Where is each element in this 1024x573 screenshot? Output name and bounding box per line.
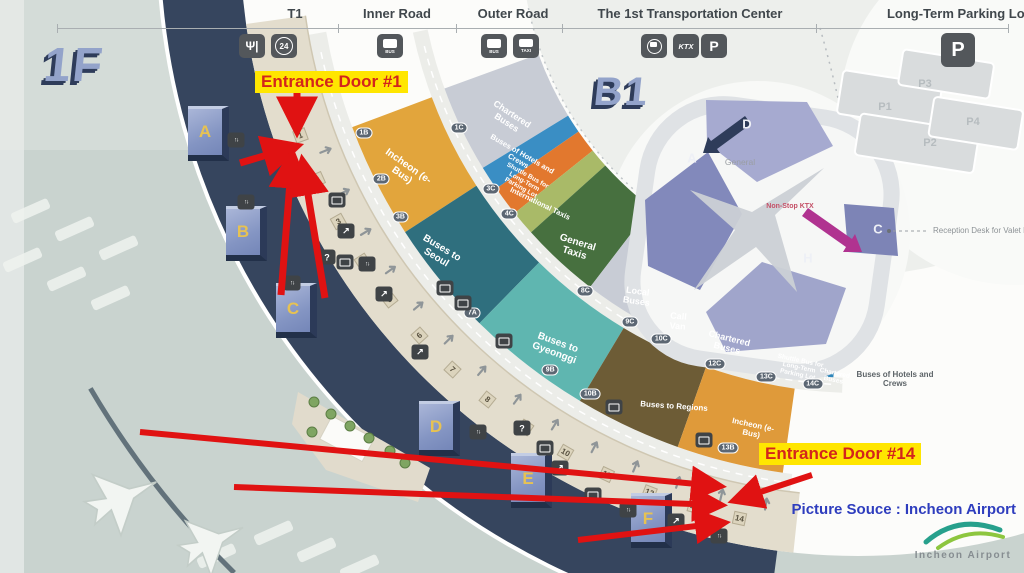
outer-road-stop-marker: 3C bbox=[482, 184, 499, 195]
ktx-icon: KTX bbox=[673, 34, 699, 58]
gate-letter: D bbox=[430, 417, 442, 437]
escalator-icon: ↗ bbox=[338, 224, 355, 239]
ticket-machine-icon bbox=[537, 441, 554, 456]
ruler-tick bbox=[338, 24, 339, 33]
parking-block-label-P4: P4 bbox=[966, 116, 979, 128]
center-section-label-A: A bbox=[687, 151, 696, 166]
general-parking-label: General bbox=[725, 157, 755, 167]
inner-road-stop-marker: 2B bbox=[373, 173, 390, 184]
header-section-long-term-parking: Long-Term Parking Lot bbox=[887, 6, 1024, 21]
outer-road-zone-label: Chartered Buses bbox=[698, 328, 757, 361]
elevator-icon: ↑↓ bbox=[284, 276, 301, 291]
ticket-machine-icon bbox=[329, 193, 346, 208]
gate-letter: A bbox=[199, 122, 211, 142]
gate-letter: F bbox=[643, 509, 653, 529]
terminal-door-7: 7 bbox=[443, 360, 461, 378]
elevator-icon: ↑↓ bbox=[620, 503, 637, 518]
outer-road-zone-label: Call Van bbox=[661, 311, 695, 333]
center-section-label-C: C bbox=[873, 222, 882, 237]
ticket-machine-icon bbox=[606, 400, 623, 415]
parking-block-label-P3: P3 bbox=[918, 78, 931, 90]
terminal-gate-D: D bbox=[419, 401, 460, 456]
elevator-icon: ↑↓ bbox=[228, 133, 245, 148]
center-section-label-D: D bbox=[742, 117, 751, 132]
inner-road-zone-label: Incheon (e-Bus) bbox=[373, 144, 436, 198]
ticket-machine-icon bbox=[337, 255, 354, 270]
terminal-gate-A: A bbox=[188, 106, 229, 161]
ruler-tick bbox=[562, 24, 563, 33]
terminal-gate-C: C bbox=[276, 283, 317, 338]
inner-road-stop-marker: 13B bbox=[718, 442, 739, 453]
valet-reception-label: Reception Desk for Valet Parking bbox=[933, 226, 1024, 235]
header-section-transport-center: The 1st Transportation Center bbox=[598, 6, 783, 21]
inner-road-stop-marker: 3B bbox=[392, 212, 409, 223]
elevator-icon: ↑↓ bbox=[711, 529, 728, 544]
map-overlay: Incheon (e-Bus)Buses to SeoulBuses to Gy… bbox=[0, 0, 1024, 573]
inner-road-zone-label: Buses to Seoul bbox=[408, 229, 469, 278]
header-section-outer-road: Outer Road bbox=[478, 6, 549, 21]
ruler-tick bbox=[1008, 24, 1009, 33]
elevator-icon: ↑↓ bbox=[238, 195, 255, 210]
taxi-icon: TAXI bbox=[513, 34, 539, 58]
elevator-icon: ↑↓ bbox=[470, 425, 487, 440]
outer-road-stop-marker: 1C bbox=[451, 123, 468, 134]
outer-road-stop-marker: 8C bbox=[577, 285, 594, 296]
inner-road-zone-label: Buses to Gyeonggi bbox=[521, 326, 591, 369]
inner-road-stop-marker: 10B bbox=[580, 389, 601, 400]
inner-road-zone-label: Incheon (e-Bus) bbox=[725, 416, 780, 444]
terminal-door-2: 2 bbox=[309, 171, 326, 188]
terminal-door-10: 10 bbox=[556, 444, 574, 462]
escalator-icon: ↗ bbox=[412, 345, 429, 360]
gate-letter: E bbox=[522, 469, 533, 489]
bus-icon: BUS bbox=[481, 34, 507, 58]
escalator-icon: ↗ bbox=[376, 287, 393, 302]
header-ruler bbox=[57, 28, 1008, 29]
terminal-gate-E: E bbox=[511, 453, 552, 508]
ruler-tick bbox=[816, 24, 817, 33]
terminal-gate-F: F bbox=[631, 493, 672, 548]
open-24h-icon: 24 bbox=[271, 34, 297, 58]
outer-road-stop-marker: 12C bbox=[704, 358, 725, 369]
inner-road-stop-marker: 1B bbox=[355, 127, 372, 138]
train-icon bbox=[641, 34, 667, 58]
nonstop-ktx-label: Non-Stop KTX bbox=[765, 203, 815, 211]
parking-block-label-P1: P1 bbox=[878, 101, 891, 113]
inner-road-stop-marker: 9B bbox=[542, 364, 559, 375]
escalator-icon: ↗ bbox=[552, 461, 569, 476]
header-section-t1: T1 bbox=[287, 6, 302, 21]
terminal-door-6: 6 bbox=[410, 326, 428, 344]
header-section-inner-road: Inner Road bbox=[363, 6, 431, 21]
entrance-door-14-annotation: Entrance Door #14 bbox=[759, 443, 921, 465]
outer-road-zone-label: Local Buses bbox=[615, 284, 659, 309]
parking-icon: P bbox=[701, 34, 727, 58]
ruler-tick bbox=[456, 24, 457, 33]
terminal-door-8: 8 bbox=[478, 391, 496, 409]
picture-source-text: Picture Souce : Incheon Airport bbox=[700, 501, 1016, 518]
parking-icon: P bbox=[941, 33, 975, 67]
information-icon: ? bbox=[319, 250, 336, 265]
information-icon: ? bbox=[514, 421, 531, 436]
incheon-airport-t1-map: Incheon (e-Bus)Buses to SeoulBuses to Gy… bbox=[0, 0, 1024, 573]
ticket-machine-icon bbox=[437, 281, 454, 296]
escalator-icon: ↗ bbox=[668, 514, 685, 529]
terminal-door-11: 11 bbox=[598, 465, 615, 482]
outer-road-stop-marker: 13C bbox=[756, 371, 777, 382]
gate-letter: B bbox=[237, 222, 249, 242]
outer-road-stop-marker: 14C bbox=[802, 378, 823, 389]
gate-letter: C bbox=[287, 299, 299, 319]
center-section-label-H: H bbox=[803, 251, 812, 266]
outer-road-stop-marker: 9C bbox=[621, 317, 638, 328]
outer-road-stop-marker: 4C bbox=[501, 209, 518, 220]
terminal-door-1: 1 bbox=[292, 127, 309, 144]
terminal-gate-B: B bbox=[226, 206, 267, 261]
ticket-machine-icon bbox=[696, 433, 713, 448]
incheon-airport-logo-text: Incheon Airport bbox=[893, 550, 1024, 561]
entrance-door-1-annotation: Entrance Door #1 bbox=[255, 71, 408, 93]
ticket-machine-icon bbox=[455, 296, 472, 311]
ticket-machine-icon bbox=[585, 488, 602, 503]
elevator-icon: ↑↓ bbox=[359, 257, 376, 272]
bus-icon: BUS bbox=[377, 34, 403, 58]
ticket-machine-icon bbox=[496, 334, 513, 349]
restaurant-icon: Ψ| bbox=[239, 34, 265, 58]
outer-road-zone-label: Buses of Hotels and Crews bbox=[855, 371, 935, 389]
outer-road-stop-marker: 10C bbox=[651, 334, 672, 345]
outer-road-zone-label: General Taxis bbox=[549, 230, 603, 266]
parking-block-label-P2: P2 bbox=[923, 137, 936, 149]
ruler-tick bbox=[57, 24, 58, 33]
